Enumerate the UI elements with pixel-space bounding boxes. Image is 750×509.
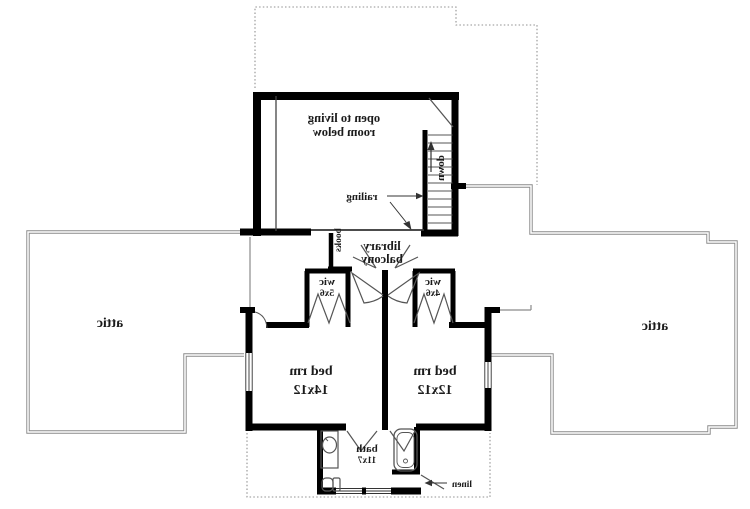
label-bath-size: 11x7 [358,456,377,466]
label-down: down [435,155,447,181]
stair-corner-diagonal [429,98,453,127]
window-left-bedroom [244,353,254,391]
window-bath-2 [366,487,391,495]
walls [240,92,500,494]
label-wic-right: wic [425,276,441,288]
bathtub [394,429,417,471]
label-books: books [334,228,344,252]
label-wic-left-size: 5x6 [320,289,335,299]
attic-left-outline [28,232,252,432]
label-wic-right-size: 4x6 [426,289,441,299]
railing-arrow-1 [387,193,424,199]
label-bed-left-size: 14x12 [294,383,329,398]
floor-plan-canvas: open to living room below railing down l… [0,0,750,509]
label-attic-right: attic [642,319,668,334]
label-balcony: balcony [360,252,402,266]
label-open-to-living: room below [313,125,376,139]
label-library: library [363,239,401,253]
floor-plan-drawing: open to living room below railing down l… [0,0,750,509]
label-open-to-living: open to living [307,111,380,125]
window-right-bedroom [483,362,493,388]
label-bed-right-size: 12x12 [418,383,453,398]
sink-vanity [321,431,338,468]
door-linen [421,475,444,489]
label-attic-left: attic [97,316,123,331]
label-bed-right: bed rm [413,364,457,379]
door-swing-left-bedroom [352,273,383,303]
label-bed-left: bed rm [289,364,333,379]
label-wic-left: wic [319,276,335,288]
railing-arrow-2 [390,202,412,230]
linen-arrow [425,480,448,486]
label-railing: railing [346,191,378,203]
label-bath: bath [356,443,377,455]
label-linen: linen [451,480,472,490]
door-swing-bedroom-entry [255,312,267,328]
